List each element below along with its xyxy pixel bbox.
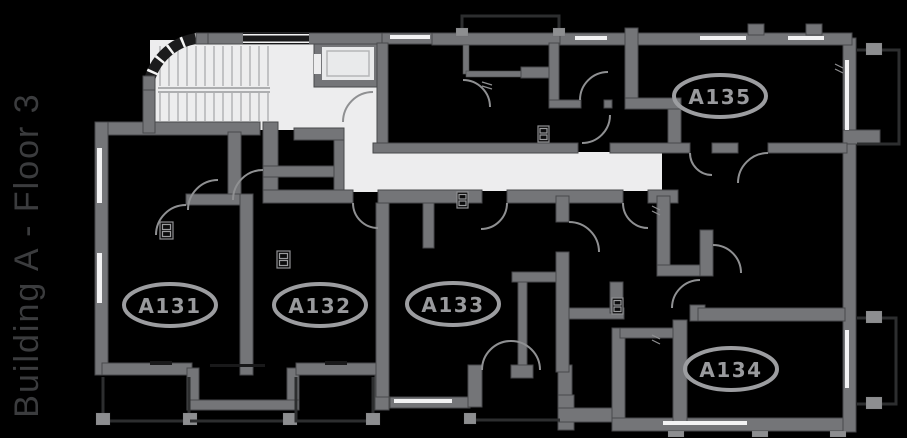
- unit-oval-A134[interactable]: A134: [685, 348, 777, 390]
- unit-oval-A133[interactable]: A133: [407, 283, 499, 325]
- unit-oval-A135[interactable]: A135: [674, 75, 766, 117]
- page-title: Building A - Floor 3: [8, 92, 46, 417]
- unit-label-text: A133: [421, 293, 484, 317]
- unit-label-text: A132: [288, 294, 351, 318]
- unit-label-text: A134: [699, 358, 762, 382]
- corridor-floor: [150, 40, 662, 192]
- unit-label-text: A135: [688, 85, 751, 109]
- floor-plan-canvas: A131A132A133A134A135 Building A - Floor …: [0, 0, 907, 438]
- unit-oval-A132[interactable]: A132: [274, 284, 366, 326]
- floor-plan-page: A131A132A133A134A135 Building A - Floor …: [0, 0, 907, 438]
- unit-oval-A131[interactable]: A131: [124, 284, 216, 326]
- unit-label-text: A131: [138, 294, 201, 318]
